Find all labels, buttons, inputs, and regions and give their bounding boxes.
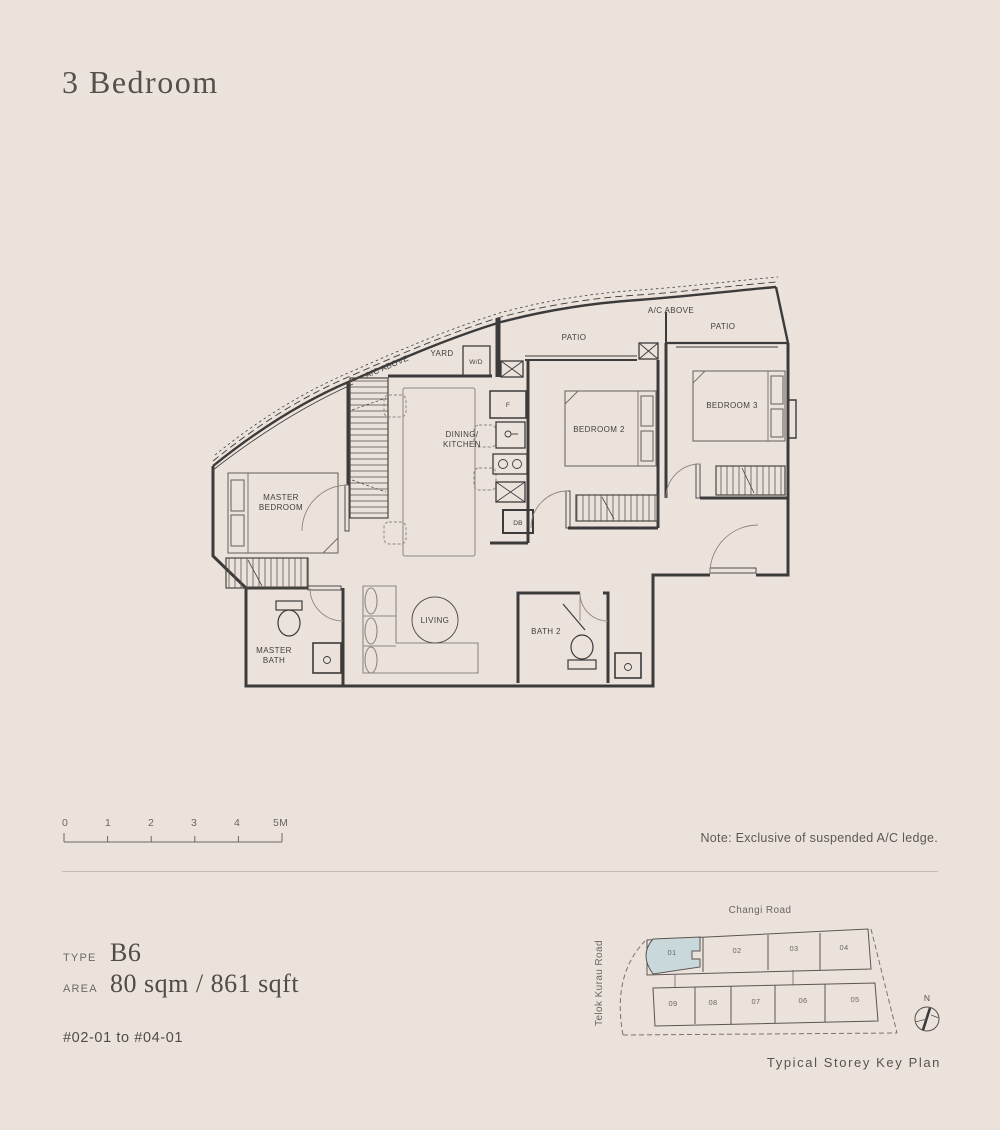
- area-label: AREA: [63, 983, 110, 995]
- type-label: TYPE: [63, 952, 110, 964]
- compass-north-label: N: [924, 993, 930, 1003]
- room-label-bedroom2: BEDROOM 2: [573, 425, 625, 434]
- spec-type-row: TYPE B6: [63, 938, 141, 968]
- key-plan: 01 02 03 04 09 08 07 06 05 Changi Road T…: [575, 893, 975, 1083]
- room-label-yard: YARD: [430, 349, 453, 358]
- scale-tick-2: 2: [148, 817, 154, 829]
- room-label-master-bath: MASTER: [256, 646, 292, 655]
- bath2-fixtures: [568, 635, 641, 678]
- type-value: B6: [110, 938, 141, 968]
- label-wd: W/D: [469, 359, 482, 366]
- dining-set: [384, 388, 496, 556]
- scale-tick-1: 1: [105, 817, 111, 829]
- room-label-master-bedroom: MASTER: [263, 493, 299, 502]
- entrance-door: [710, 568, 756, 573]
- unit-07: 07: [752, 997, 761, 1006]
- road-label-changi: Changi Road: [729, 905, 792, 916]
- room-label-living: LIVING: [421, 616, 450, 625]
- room-label-dining: DINING/: [445, 430, 478, 439]
- floor-plan-svg: MASTER BEDROOM DINING/ KITCHEN YARD W/D …: [190, 270, 810, 702]
- road-label-telok-kurau: Telok Kurau Road: [594, 940, 605, 1026]
- unit-08: 08: [709, 998, 718, 1007]
- unit-01: 01: [668, 948, 677, 957]
- page-title: 3 Bedroom: [62, 64, 219, 101]
- sofa: [363, 586, 478, 673]
- spec-area-row: AREA 80 sqm / 861 sqft: [63, 969, 299, 999]
- bedroom2-wardrobe: [576, 495, 658, 521]
- unit-05: 05: [851, 995, 860, 1004]
- scale-bar: 0 1 2 3 4 5M: [60, 814, 300, 854]
- label-fridge: F: [506, 402, 510, 409]
- key-plan-caption: Typical Storey Key Plan: [767, 1055, 941, 1070]
- scale-tick-3: 3: [191, 817, 197, 829]
- bedroom3-wardrobe: [716, 466, 785, 495]
- label-db: DB: [513, 520, 523, 527]
- unit-02: 02: [733, 946, 742, 955]
- unit-03: 03: [790, 944, 799, 953]
- scale-tick-5: 5M: [273, 817, 288, 829]
- unit-06: 06: [799, 996, 808, 1005]
- room-label-bedroom3: BEDROOM 3: [706, 401, 758, 410]
- compass-icon: N: [915, 993, 939, 1031]
- svg-text:KITCHEN: KITCHEN: [443, 440, 481, 449]
- plan-note: Note: Exclusive of suspended A/C ledge.: [560, 831, 938, 845]
- master-bed: [228, 473, 338, 553]
- scale-tick-4: 4: [234, 817, 240, 829]
- svg-text:BATH: BATH: [263, 656, 285, 665]
- unit-range: #02-01 to #04-01: [63, 1030, 183, 1046]
- unit-09: 09: [669, 999, 678, 1008]
- svg-text:BEDROOM: BEDROOM: [259, 503, 303, 512]
- room-label-patio-left: PATIO: [562, 333, 587, 342]
- room-label-patio-right: PATIO: [711, 322, 736, 331]
- master-bath-fixtures: [276, 601, 341, 673]
- label-ac-above-right: A/C ABOVE: [648, 306, 694, 315]
- scale-tick-0: 0: [62, 817, 68, 829]
- master-wardrobe: [226, 558, 308, 588]
- unit-04: 04: [840, 943, 849, 952]
- floor-plan: MASTER BEDROOM DINING/ KITCHEN YARD W/D …: [190, 270, 810, 702]
- divider-line: [62, 871, 938, 872]
- room-label-bath2: BATH 2: [531, 627, 561, 636]
- area-value: 80 sqm / 861 sqft: [110, 969, 299, 999]
